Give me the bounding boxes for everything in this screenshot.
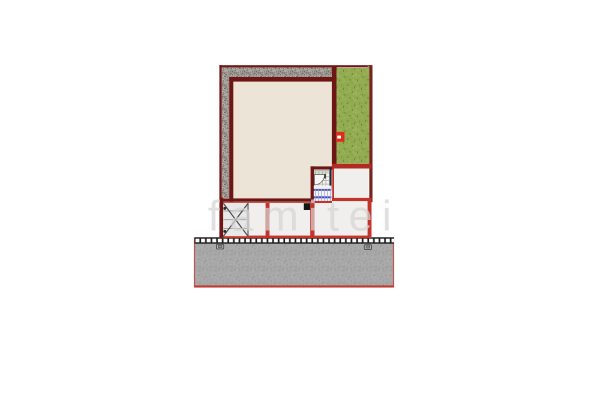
svg-text:famitei: famitei <box>208 193 401 241</box>
